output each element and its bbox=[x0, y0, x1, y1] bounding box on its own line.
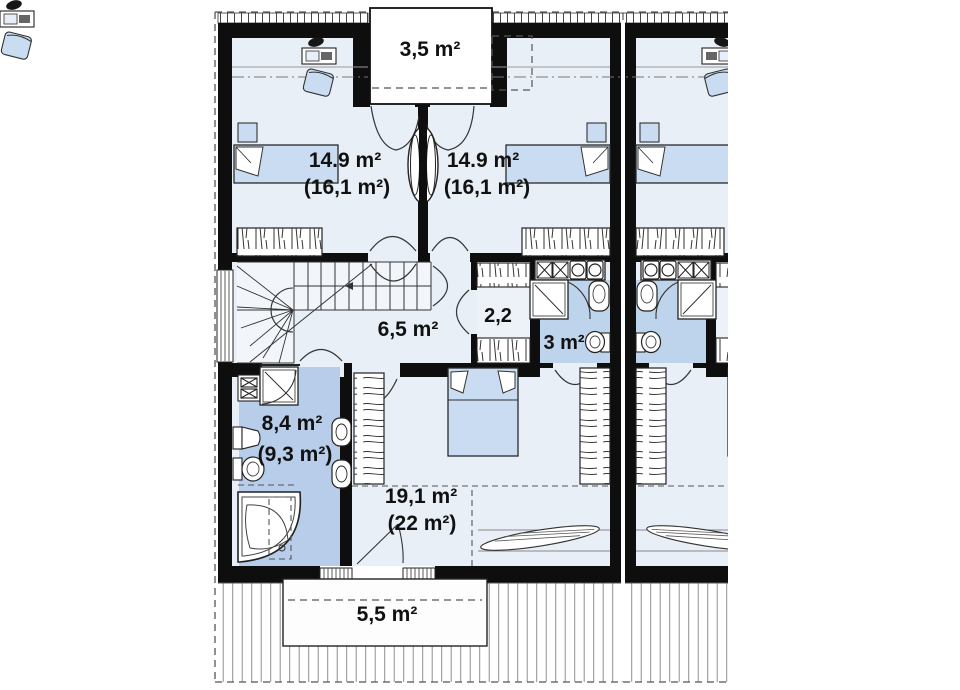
room-label-hall: 6,5 m² bbox=[378, 318, 439, 341]
sink-basin-icon bbox=[570, 261, 603, 279]
shower-icon bbox=[260, 365, 300, 405]
washer-icon bbox=[238, 375, 260, 401]
room-label-bedroom-left-2: (16,1 m²) bbox=[304, 176, 390, 199]
room-label-balcony: 3,5 m² bbox=[400, 38, 461, 61]
room-label-bedroom-right: 14.9 m² bbox=[447, 149, 519, 172]
roof-edge-hatch bbox=[492, 13, 623, 23]
party-wall-gap bbox=[621, 20, 625, 681]
washer-icon bbox=[537, 262, 568, 278]
room-label-bedroom-left: 14.9 m² bbox=[309, 149, 381, 172]
roof-edge-hatch bbox=[218, 13, 368, 23]
floor-plan: 3,5 m² 14.9 m² (16,1 m²) 14.9 m² (16,1 m… bbox=[0, 0, 960, 690]
sink-icon bbox=[589, 281, 609, 311]
room-label-terrace: 5,5 m² bbox=[357, 603, 418, 626]
bed-icon bbox=[448, 368, 518, 456]
window bbox=[217, 270, 233, 362]
crop-mask bbox=[728, 0, 960, 690]
room-label-bathroom-2: (9,3 m²) bbox=[258, 443, 333, 466]
toilet-icon bbox=[586, 332, 611, 353]
room-label-bathroom-small: 3 m² bbox=[543, 332, 584, 354]
room-label-closet: 2,2 bbox=[484, 305, 512, 327]
room-label-bathroom: 8,4 m² bbox=[262, 412, 323, 435]
room-label-bedroom-master-2: (22 m²) bbox=[388, 512, 457, 535]
desk-set-icon bbox=[0, 0, 34, 60]
floor-plan-page: 3,5 m² 14.9 m² (16,1 m²) 14.9 m² (16,1 m… bbox=[0, 0, 960, 690]
room-label-bedroom-master: 19,1 m² bbox=[385, 485, 457, 508]
room-label-bedroom-right-2: (16,1 m²) bbox=[444, 176, 530, 199]
sink-icon bbox=[233, 427, 260, 449]
